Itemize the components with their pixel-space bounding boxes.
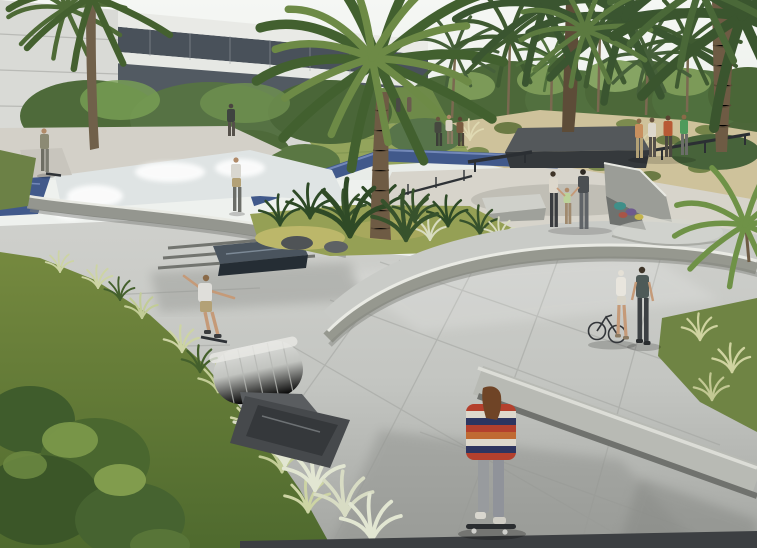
skateboard (466, 524, 516, 529)
rock-2 (324, 241, 348, 253)
skatepark-rendering (0, 0, 757, 548)
planter-top (505, 126, 650, 152)
rock-1 (281, 236, 313, 250)
rendering-svg (0, 0, 757, 548)
